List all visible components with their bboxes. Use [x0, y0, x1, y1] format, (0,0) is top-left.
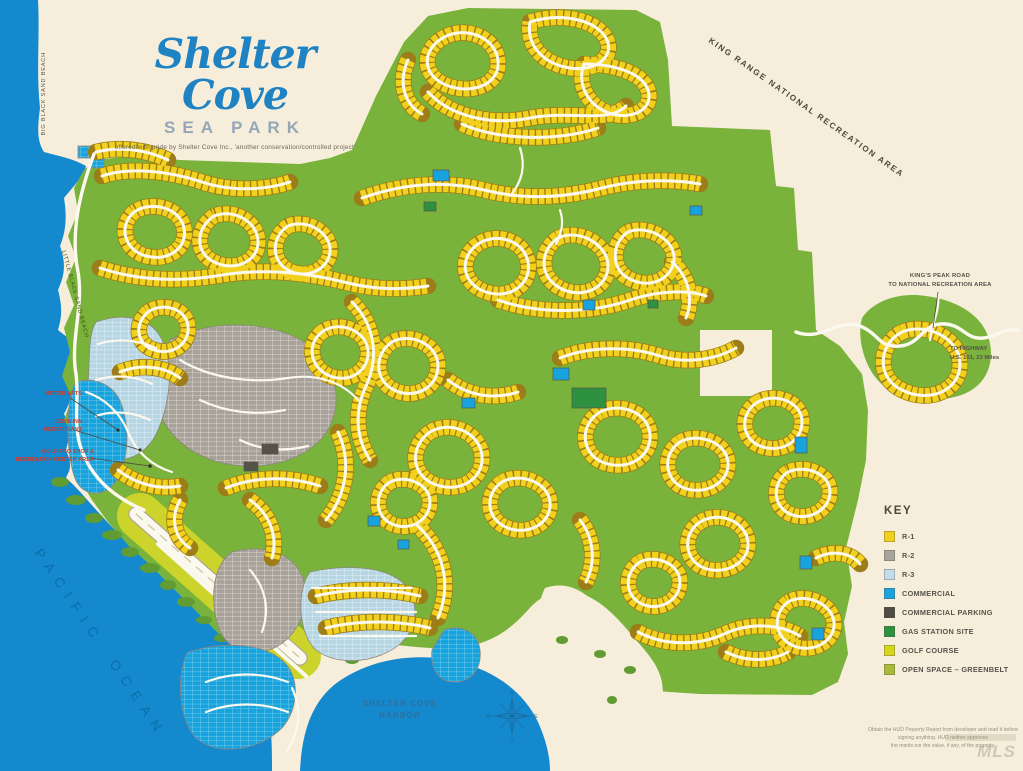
- legend-item: R-3: [884, 569, 1022, 580]
- legend-item: OPEN SPACE – GREENBELT: [884, 664, 1022, 675]
- legend-swatch: [884, 569, 895, 580]
- legend-label: R-3: [902, 570, 915, 579]
- gas-station-site: [424, 202, 436, 211]
- legend-label: GOLF COURSE: [902, 646, 959, 655]
- map-key: KEY R-1R-2R-3COMMERCIALCOMMERCIAL PARKIN…: [884, 505, 1022, 683]
- commercial-parking-site: [244, 462, 258, 471]
- legend-swatch: [884, 664, 895, 675]
- commercial-parking-site: [262, 444, 278, 454]
- brand-tagline: offered with pride by Shelter Cove Inc.,…: [104, 144, 366, 151]
- compass-rose: N E S W: [486, 690, 538, 742]
- key-title: KEY: [884, 505, 1022, 517]
- legend-label: COMMERCIAL PARKING: [902, 608, 993, 617]
- legend-list: R-1R-2R-3COMMERCIALCOMMERCIAL PARKINGGAS…: [884, 531, 1022, 675]
- legend-swatch: [884, 607, 895, 618]
- map-page: Shelter Cove SEA PARK offered with pride…: [0, 0, 1023, 771]
- legend-item: COMMERCIAL PARKING: [884, 607, 1022, 618]
- commercial-site: [433, 170, 449, 181]
- compass-n: N: [510, 691, 514, 697]
- legend-label: OPEN SPACE – GREENBELT: [902, 665, 1008, 674]
- commercial-site: [462, 398, 475, 408]
- legend-swatch: [884, 626, 895, 637]
- legend-label: R-2: [902, 551, 915, 560]
- legend-item: COMMERCIAL: [884, 588, 1022, 599]
- commercial-site: [690, 206, 702, 215]
- big-black-sand-beach-label: BIG BLACK SAND BEACH: [41, 52, 47, 135]
- commercial-site: [800, 556, 812, 569]
- rec-center-label: GOLF PRO SHOP & RECREATION CENTER AREA: [12, 449, 94, 465]
- legend-swatch: [884, 645, 895, 656]
- commercial-site: [368, 516, 380, 526]
- legend-item: R-2: [884, 550, 1022, 561]
- compass-s: S: [510, 738, 514, 743]
- to-highway-label: TO HIGHWAY U.S. 101, 23 Miles: [950, 345, 1022, 363]
- kings-peak-road-label: KING'S PEAK ROAD TO NATIONAL RECREATION …: [880, 272, 1000, 290]
- compass-w: W: [486, 714, 491, 720]
- harbor-label: SHELTER COVE HARBOR: [340, 698, 460, 721]
- legend-item: GAS STATION SITE: [884, 626, 1022, 637]
- legend-item: R-1: [884, 531, 1022, 542]
- commercial-site: [812, 628, 824, 640]
- brand-logo: Shelter Cove: [104, 34, 366, 116]
- legend-swatch: [884, 550, 895, 561]
- commercial-site: [398, 540, 409, 549]
- legend-swatch: [884, 531, 895, 542]
- mls-watermark: MLS: [946, 734, 1016, 762]
- legend-swatch: [884, 588, 895, 599]
- commercial-site: [553, 368, 569, 380]
- legend-label: COMMERCIAL: [902, 589, 955, 598]
- brand-subtitle: SEA PARK: [104, 118, 366, 138]
- compass-e: E: [534, 714, 538, 720]
- motor-apts-label: MOTOR APTS: [24, 391, 82, 399]
- commercial-site: [795, 437, 807, 453]
- legend-label: R-1: [902, 532, 915, 541]
- commercial-site: [583, 300, 595, 310]
- legend-label: GAS STATION SITE: [902, 627, 974, 636]
- title-block: Shelter Cove SEA PARK offered with pride…: [104, 34, 366, 151]
- cove-inn-label: COVE INN RESTAURANT: [18, 419, 82, 435]
- legend-item: GOLF COURSE: [884, 645, 1022, 656]
- gas-station-site: [648, 300, 658, 308]
- forest-patch: [572, 388, 606, 408]
